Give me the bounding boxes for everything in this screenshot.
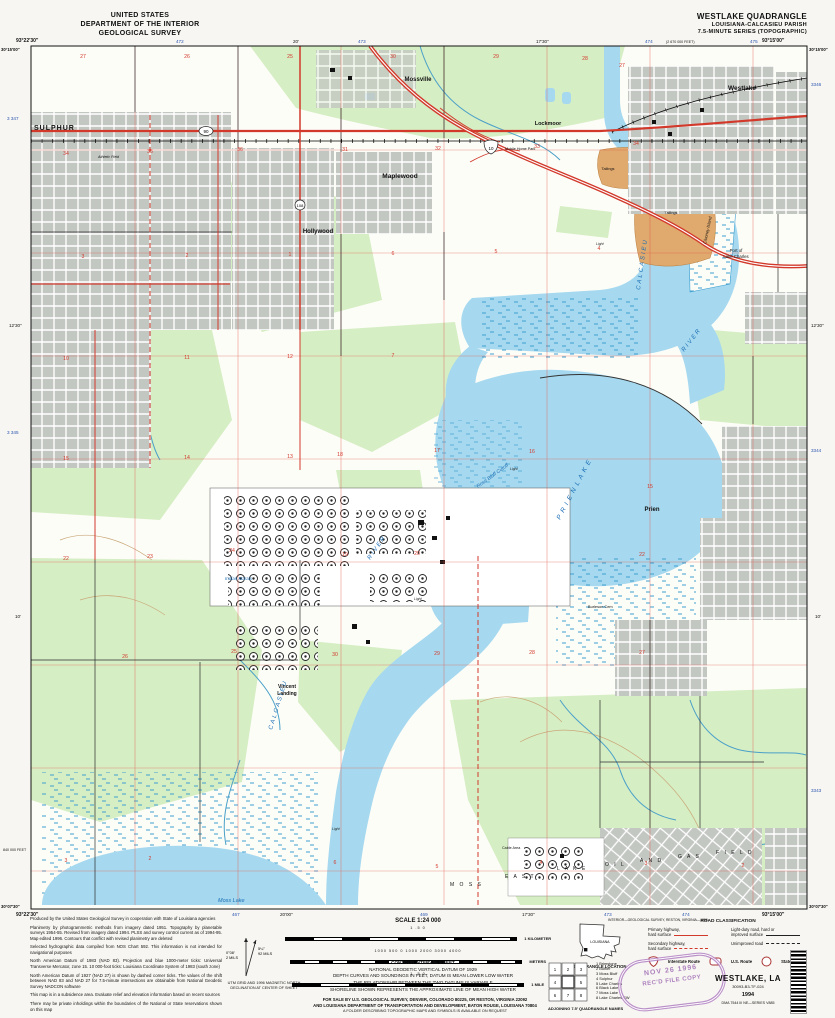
scale-numbers: 1000 500 0 1000 2000 3000 4000: [268, 949, 568, 953]
quad-location-dot: [584, 948, 587, 951]
section-number: 28: [529, 650, 535, 656]
label-lockmoor: Lockmoor: [535, 121, 562, 127]
section-number: 1: [289, 252, 292, 258]
credit-paragraph: This map is in a subsidence area. Evalua…: [30, 992, 222, 998]
contour-line: NATIONAL GEODETIC VERTICAL DATUM OF 1929: [258, 967, 588, 974]
section-number: 17: [434, 448, 440, 454]
label-sulphur: SULPHUR: [34, 125, 75, 132]
interstate-shield-label: 10: [488, 146, 494, 151]
section-number: 18: [337, 452, 343, 458]
adjoining-caption: ADJOINING 7.5′ QUADRANGLE NAMES: [548, 1006, 630, 1011]
label-westlake: Westlake: [728, 85, 756, 92]
section-number: 25: [287, 54, 293, 60]
section-number: 11: [184, 355, 189, 361]
credit-paragraph: North American Datum of 1927 (NAD 27) is…: [30, 973, 222, 990]
label-light: Light: [510, 467, 519, 471]
road-classification-title: ROAD CLASSIFICATION: [648, 919, 808, 924]
section-number: 22: [639, 552, 645, 558]
label-athletic-field: Athletic Field: [97, 155, 120, 159]
credit-paragraph: Selected hydrographic data compiled from…: [30, 944, 222, 955]
label-mobile-home-park: Mobile Home Park: [505, 147, 535, 151]
credit-paragraph: Planimetry by photogrammetric methods fr…: [30, 925, 222, 942]
contour-line: DEPTH CURVES AND SOUNDINGS IN FEET, DATU…: [258, 973, 588, 980]
section-number: 29: [493, 54, 499, 60]
section-number: 30: [332, 652, 338, 658]
section-number: 36: [237, 147, 243, 153]
label-moss-lake: Moss Lake: [218, 898, 245, 904]
section-number: 35: [147, 149, 153, 155]
scale-title: SCALE 1:24 000: [268, 918, 568, 924]
section-number: 32: [435, 146, 441, 152]
section-number: 27: [80, 54, 86, 60]
legend-secondary: Secondary highway, hard surface: [648, 941, 725, 952]
credit-paragraph: Produced by the United States Geological…: [30, 916, 222, 922]
map-canvas[interactable]: 90 10 108 27 26 25 30 29 28 27 34 35 36 …: [0, 0, 835, 1018]
label-moss: M O S S: [450, 882, 483, 888]
legend-label: hard surface: [648, 946, 671, 951]
section-number: 34: [633, 141, 639, 147]
primary-highway-symbol: [674, 935, 708, 936]
label-port-1: Port of: [730, 248, 743, 253]
section-number: 4: [540, 860, 543, 866]
label-and: A N D: [640, 858, 663, 864]
section-number: 5: [436, 864, 439, 870]
section-number: 12: [287, 354, 293, 360]
label-burleson-cem: Burleson Cem: [588, 604, 613, 609]
legend-label: Secondary highway,: [648, 941, 685, 946]
louisiana-outline: LOUISIANA: [574, 922, 626, 962]
section-number: 27: [639, 650, 645, 656]
section-number: 6: [392, 251, 395, 257]
map-name: WESTLAKE, LA: [698, 974, 798, 983]
label-field: F I E L D: [716, 850, 754, 856]
section-number: 2: [186, 253, 189, 259]
legend-label: hard surface: [648, 932, 671, 937]
secondary-highway-symbol: [674, 948, 708, 949]
label-light: Light: [332, 827, 341, 831]
contour-line: SHORELINE SHOWN REPRESENTS THE APPROXIMA…: [258, 987, 588, 994]
label-indian-marais: Indian Marais: [225, 576, 253, 581]
adjoining-grid: 1 2 3 4 5 6 7 8: [548, 962, 590, 1004]
section-number: 28: [582, 56, 588, 62]
state-route-icon: [761, 956, 772, 967]
map-id: 30093-B3-TF-024: [698, 984, 798, 989]
gn-degrees: 0°08′: [226, 951, 235, 955]
label-prien: Prien: [644, 507, 659, 513]
section-number: 34: [63, 151, 69, 157]
legend-label: Light-duty road, hard or: [731, 927, 775, 932]
label-gas: G A S: [678, 854, 701, 860]
section-number: 10: [63, 356, 69, 362]
legend-label: improved surface: [731, 932, 763, 937]
contour-note: CONTOUR INTERVAL 5 FEET NATIONAL GEODETI…: [258, 960, 588, 993]
mn-degrees: 5¼°: [258, 947, 265, 951]
section-number: 5: [495, 249, 498, 255]
contour-line: CONTOUR INTERVAL 5 FEET: [258, 960, 588, 967]
label-maplewood: Maplewood: [382, 173, 417, 180]
section-number: 19: [342, 552, 348, 558]
section-number: 14: [184, 455, 190, 461]
section-number: 2: [742, 863, 745, 869]
section-number: 6: [334, 860, 337, 866]
section-number: 7: [392, 353, 395, 359]
scale-numbers: 1 .5 0: [268, 926, 568, 930]
gn-mils: 2 MILS: [226, 956, 238, 960]
label-east: E A S T: [505, 874, 536, 880]
legend-label: Unimproved road: [731, 941, 763, 946]
map-year: 1994: [698, 992, 798, 998]
section-number: 29: [434, 651, 440, 657]
label-mossville: Mossville: [404, 77, 432, 83]
section-number: 2: [149, 856, 152, 862]
state-route-shield-label: 108: [297, 203, 304, 208]
section-number: 13: [287, 454, 293, 460]
production-credit: Produced by the United States Geological…: [30, 916, 222, 1015]
legend-primary: Primary highway, hard surface: [648, 927, 725, 938]
section-number: 20: [414, 551, 420, 557]
legend-light-duty: Light-duty road, hard or improved surfac…: [731, 927, 808, 938]
section-number: 26: [184, 54, 190, 60]
label-oil: O I L: [605, 862, 626, 868]
section-number: 16: [529, 449, 535, 455]
credit-paragraph: There may be private inholdings within t…: [30, 1001, 222, 1012]
label-hollywood: Hollywood: [303, 229, 334, 235]
label-cable-area: Cable Area: [502, 846, 521, 850]
label-tailings-1: Tailings: [602, 166, 615, 171]
scale-bar-kilometer: 1 .5 0 1 KILOMETER: [268, 926, 568, 948]
us-route-shield-label: 90: [203, 129, 209, 134]
state-name: LOUISIANA: [590, 940, 610, 944]
section-number: 25: [231, 649, 237, 655]
section-number: 15: [63, 456, 69, 462]
map-name-block: WESTLAKE, LA 30093-B3-TF-024 1994 DMA 75…: [698, 974, 798, 1005]
unimproved-road-symbol: [766, 943, 800, 944]
label-light: Light: [414, 597, 423, 601]
section-number: 3: [65, 858, 68, 864]
light-duty-road-symbol: [766, 935, 800, 936]
scale-bar: [285, 937, 517, 942]
label-tailings-2: Tailings: [665, 210, 678, 215]
contour-line: THE RELATIONSHIP BETWEEN THE TWO DATUMS …: [258, 980, 588, 987]
section-number: 24: [229, 548, 235, 554]
section-number: 22: [63, 556, 69, 562]
section-number: 3: [82, 254, 85, 260]
section-number: 30: [390, 54, 396, 60]
us-route-label: U.S. Route: [731, 959, 752, 964]
label-lake: L A K E: [557, 866, 587, 872]
section-number: 26: [122, 654, 128, 660]
legend-label: Primary highway,: [648, 927, 680, 932]
label-light: Light: [596, 242, 605, 246]
section-number: 23: [147, 554, 153, 560]
map-area: 90 10 108 27 26 25 30 29 28 27 34 35 36 …: [31, 46, 807, 909]
map-series: DMA 7544 III NE—SERIES V885: [698, 1001, 798, 1005]
section-number: 31: [342, 147, 348, 153]
section-number: 4: [598, 246, 601, 252]
scale-unit: 1 KILOMETER: [524, 936, 551, 941]
credit-paragraph: North American Datum of 1983 (NAD 83). P…: [30, 958, 222, 969]
barcode: [790, 950, 807, 1014]
section-number: 27: [619, 63, 625, 69]
label-port-2: Lake Charles: [723, 254, 748, 259]
topo-map-sheet: { "header": { "left1": "UNITED STATES", …: [0, 0, 835, 1018]
section-number: 15: [647, 484, 653, 490]
